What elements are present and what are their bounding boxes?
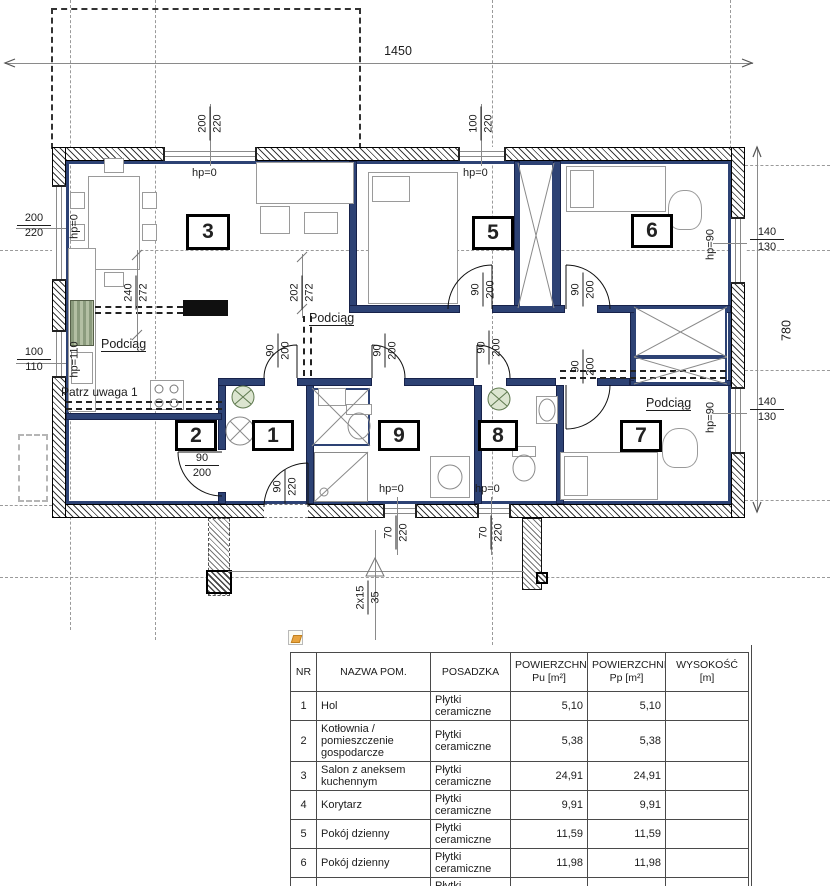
table-cell: 5,10: [511, 692, 588, 721]
window-dim-bottom-left: 70 220: [383, 513, 410, 553]
table-cell: 5,38: [588, 721, 666, 762]
room-number-1: 1: [252, 420, 294, 451]
table-cell: [666, 820, 749, 849]
sill-height-right-upper: hp=90: [705, 223, 718, 267]
table-cell: Płytki ceramiczne: [431, 721, 511, 762]
note-label: Patrz uwaga 1: [61, 386, 138, 399]
table-header-cell: NAZWA POM.: [317, 653, 431, 692]
door-dim-entrance: 90 220: [272, 470, 299, 504]
window-dim-top-left: 200 220: [197, 104, 224, 144]
table-header-cell: POWIERZCHNIAPu [m²]: [511, 653, 588, 692]
table-cell: 6: [291, 849, 317, 878]
table-cell: 11,98: [511, 849, 588, 878]
table-cell: Pokój dzienny: [317, 878, 431, 886]
room-number-5: 5: [472, 216, 514, 250]
embedded-object-icon: [288, 630, 303, 645]
table-cell: [666, 692, 749, 721]
table-cell: [666, 878, 749, 886]
opening-dim-kitchen: 240 272: [123, 273, 150, 313]
table-row: 6Pokój dziennyPłytki ceramiczne11,9811,9…: [291, 849, 749, 878]
beam-label-center: Podciąg: [309, 311, 354, 326]
window-dim-bottom-right: 70 220: [478, 513, 505, 553]
beam-label-room7: Podciąg: [646, 396, 691, 411]
table-cell: [666, 849, 749, 878]
table-cell: 11,59: [511, 820, 588, 849]
table-cell: Płytki ceramiczne: [431, 762, 511, 791]
door-dim-room6: 90 200: [570, 273, 597, 307]
table-outer-border: [751, 645, 752, 886]
table-cell: 4: [291, 791, 317, 820]
table-header-cell: NR: [291, 653, 317, 692]
room-number-2: 2: [175, 420, 217, 451]
table-cell: 10,09: [588, 878, 666, 886]
table-cell: Pokój dzienny: [317, 820, 431, 849]
table-row: 1HolPłytki ceramiczne5,105,10: [291, 692, 749, 721]
table-cell: 3: [291, 762, 317, 791]
table-header-cell: WYSOKOŚĆ[m]: [666, 653, 749, 692]
door-dim-room2: 90 200: [184, 452, 220, 479]
window-dim-right-upper: 140 130: [748, 226, 786, 253]
window-dim-top-right: 100 220: [468, 104, 495, 144]
table-cell: Płytki ceramiczne: [431, 849, 511, 878]
table-cell: 10,09: [511, 878, 588, 886]
door-dim-bath8: 90 200: [476, 331, 503, 365]
door-dim-room7: 90 200: [570, 350, 597, 384]
door-dim-room5: 90 200: [470, 273, 497, 307]
beam-label-kitchen: Podciąg: [101, 337, 146, 352]
sill-height-bottom-right: hp=0: [475, 483, 500, 496]
table-cell: 24,91: [511, 762, 588, 791]
table-row: 5Pokój dziennyPłytki ceramiczne11,5911,5…: [291, 820, 749, 849]
table-row: 4KorytarzPłytki ceramiczne9,919,91: [291, 791, 749, 820]
table-cell: 24,91: [588, 762, 666, 791]
sill-height-top-right: hp=0: [463, 167, 488, 180]
table-cell: 5,38: [511, 721, 588, 762]
table-row: 3Salon z aneksem kuchennymPłytki ceramic…: [291, 762, 749, 791]
table-cell: 11,98: [588, 849, 666, 878]
room-number-6: 6: [631, 214, 673, 248]
room-number-7: 7: [620, 420, 662, 452]
table-header-cell: POWIERZCHNIAPp [m²]: [588, 653, 666, 692]
room-number-9: 9: [378, 420, 420, 451]
table-cell: [666, 762, 749, 791]
table-cell: 5: [291, 820, 317, 849]
room-schedule-table: NRNAZWA POM.POSADZKAPOWIERZCHNIAPu [m²]P…: [290, 652, 749, 886]
table-cell: 1: [291, 692, 317, 721]
table-cell: Płytki ceramiczne: [431, 791, 511, 820]
table-cell: Hol: [317, 692, 431, 721]
table-cell: 7: [291, 878, 317, 886]
table-cell: 9,91: [588, 791, 666, 820]
opening-dim-center: 202 272: [289, 273, 316, 313]
table-cell: Płytki ceramiczne: [431, 692, 511, 721]
window-dim-right-lower: 140 130: [748, 396, 786, 423]
table-cell: Płytki ceramiczne: [431, 820, 511, 849]
room-number-3: 3: [186, 214, 230, 250]
table-cell: 5,10: [588, 692, 666, 721]
window-dim-left-lower: 100 110: [16, 346, 52, 373]
sill-height-left-lower: hp=110: [69, 338, 82, 382]
table-row: 2Kotłownia / pomieszczenie gospodarczePł…: [291, 721, 749, 762]
table-cell: Kotłownia / pomieszczenie gospodarcze: [317, 721, 431, 762]
door-dim-corridor: 90 200: [265, 334, 292, 368]
table-cell: Salon z aneksem kuchennym: [317, 762, 431, 791]
plant-icon: [232, 386, 510, 410]
table-cell: 2: [291, 721, 317, 762]
table-cell: 9,91: [511, 791, 588, 820]
sill-height-left-upper: hp=0: [69, 205, 82, 249]
table-row: 7Pokój dziennyPłytki ceramiczne10,0910,0…: [291, 878, 749, 886]
floor-plan-sheet: 1450 780: [0, 0, 830, 886]
table-cell: 11,59: [588, 820, 666, 849]
table-cell: Pokój dzienny: [317, 849, 431, 878]
sill-height-right-lower: hp=90: [705, 396, 718, 440]
table-cell: Korytarz: [317, 791, 431, 820]
table-cell: [666, 721, 749, 762]
room-number-8: 8: [478, 420, 518, 451]
table-header-cell: POSADZKA: [431, 653, 511, 692]
table-cell: [666, 791, 749, 820]
table-cell: Płytki ceramiczne: [431, 878, 511, 886]
sill-height-bottom-left: hp=0: [379, 483, 404, 496]
door-dim-bath9: 90 200: [372, 334, 399, 368]
stairs-dim: 2x15 35: [355, 578, 382, 618]
window-dim-left-upper: 200 220: [16, 212, 52, 239]
sill-height-top-left: hp=0: [192, 167, 217, 180]
